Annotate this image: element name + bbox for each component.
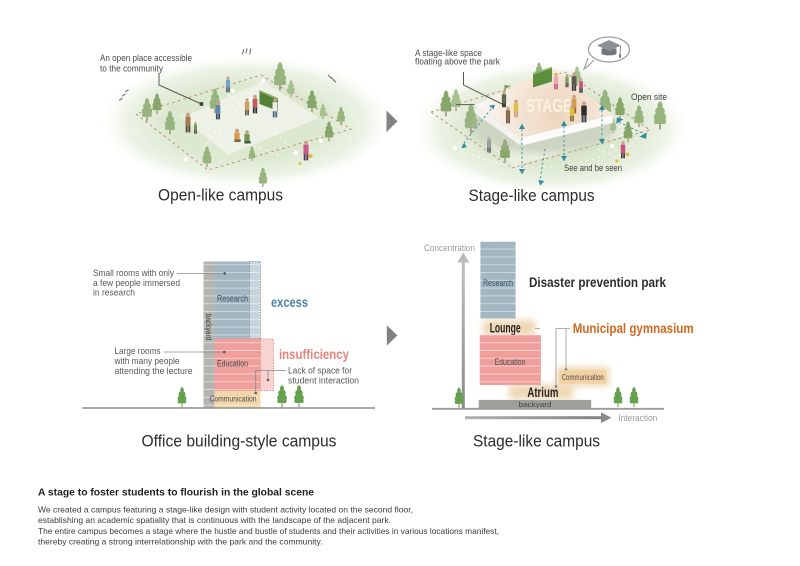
svg-text:Municipal gymnasium: Municipal gymnasium — [573, 321, 694, 336]
svg-text:Disaster prevention park: Disaster prevention park — [529, 275, 666, 290]
svg-text:See and be seen: See and be seen — [564, 163, 622, 173]
svg-text:Stage-like campus: Stage-like campus — [473, 432, 600, 451]
svg-text:Education: Education — [217, 359, 248, 369]
svg-text:STAGE: STAGE — [526, 96, 572, 116]
svg-text:floating above the park: floating above the park — [415, 57, 500, 67]
svg-text:insufficiency: insufficiency — [279, 347, 349, 362]
svg-text:thereby creating a strong inte: thereby creating a strong interrelations… — [38, 537, 323, 547]
svg-text:Interaction: Interaction — [618, 413, 657, 424]
svg-text:backyard: backyard — [519, 400, 552, 409]
svg-text:Open site: Open site — [631, 92, 667, 102]
svg-text:with many people: with many people — [114, 356, 180, 366]
svg-text:Office building-style campus: Office building-style campus — [142, 432, 337, 451]
svg-text:to the community: to the community — [100, 64, 163, 74]
svg-text:in research: in research — [93, 288, 135, 298]
svg-text:The entire campus becomes a st: The entire campus becomes a stage where … — [38, 526, 499, 536]
svg-text:backyard: backyard — [204, 314, 213, 341]
svg-text:a few people immersed: a few people immersed — [93, 278, 180, 288]
svg-text:attending the lecture: attending the lecture — [115, 366, 193, 376]
svg-text:Communication: Communication — [562, 372, 604, 382]
svg-text:student interaction: student interaction — [288, 376, 359, 386]
svg-text:A stage to foster students to: A stage to foster students to flourish i… — [38, 487, 314, 499]
svg-text:Atrium: Atrium — [527, 385, 558, 400]
svg-text:establishing an academic spati: establishing an academic spatiality that… — [38, 515, 391, 525]
svg-text:Lounge: Lounge — [490, 321, 521, 336]
svg-text:Education: Education — [495, 357, 526, 367]
svg-text:Stage-like campus: Stage-like campus — [469, 186, 595, 205]
svg-text:Lack of space for: Lack of space for — [288, 366, 352, 376]
svg-text:Small rooms with only: Small rooms with only — [93, 268, 174, 278]
svg-text:Large rooms: Large rooms — [115, 346, 161, 356]
svg-text:Research: Research — [483, 278, 513, 288]
svg-text:excess: excess — [271, 295, 308, 310]
svg-text:We created a campus featuring: We created a campus featuring a stage-li… — [38, 505, 413, 515]
svg-text:Research: Research — [217, 294, 248, 304]
svg-text:Open-like campus: Open-like campus — [158, 186, 283, 205]
svg-text:An open place accessible: An open place accessible — [100, 53, 192, 63]
svg-text:Concentration: Concentration — [424, 243, 475, 254]
svg-text:Communication: Communication — [210, 394, 257, 404]
